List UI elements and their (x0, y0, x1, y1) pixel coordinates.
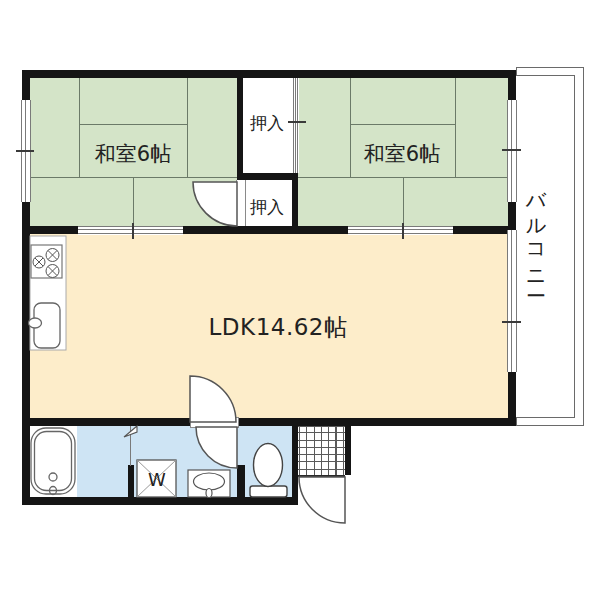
washbasin-icon (188, 470, 230, 498)
label-washitsu-right: 和室6帖 (364, 140, 440, 168)
door-entry (299, 477, 345, 523)
label-closet-lower: 押入 (250, 196, 284, 219)
door-ldk (190, 376, 236, 422)
floor-plan: 和室6帖 和室6帖 押入 押入 LDK14.62帖 W バルコニー (0, 0, 600, 600)
fixtures-layer (0, 0, 600, 600)
kitchen-counter (29, 236, 67, 350)
label-balcony: バルコニー (524, 178, 551, 289)
toilet-icon (250, 444, 287, 498)
label-ldk: LDK14.62帖 (209, 312, 348, 343)
door-closet-lower (193, 182, 237, 226)
label-closet-upper: 押入 (250, 112, 284, 135)
folding-door-bath (124, 426, 137, 437)
label-washer: W (148, 469, 166, 490)
bathtub-icon (31, 428, 75, 495)
label-washitsu-left: 和室6帖 (95, 140, 171, 168)
door-washroom (196, 427, 237, 468)
